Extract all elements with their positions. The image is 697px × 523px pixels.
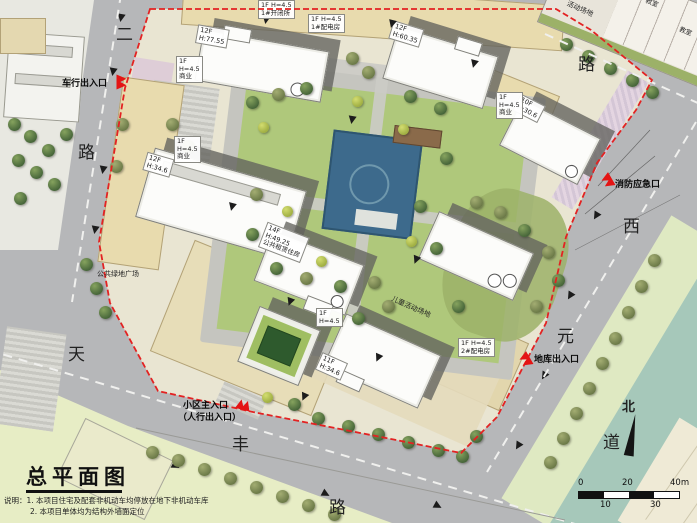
fire-emergency-label: 消防应急口 (615, 177, 660, 190)
commercial-label: 1FH=4.5商业 (176, 56, 203, 83)
public-green-label: 公共绿地广场 (97, 269, 139, 279)
tree-icon (352, 96, 363, 107)
scale-tick: 20 (622, 478, 633, 488)
tree-icon (80, 258, 93, 271)
scale-bar-segments (578, 491, 680, 499)
tree-icon (250, 188, 263, 201)
direction-arrow-icon (565, 291, 576, 302)
main-entrance-label-line2: （人行出入口） (178, 410, 241, 423)
tree-icon (302, 499, 315, 512)
tree-icon (609, 332, 622, 345)
utility-label-power-room-1: 1F H=4.51#配电房 (308, 14, 345, 33)
tree-icon (282, 206, 293, 217)
tree-icon (362, 66, 375, 79)
tree-icon (583, 382, 596, 395)
north-label: 北 (622, 396, 635, 415)
scale-tick: 0 (578, 478, 583, 488)
road-name-yuan: 元 (557, 322, 574, 347)
tree-icon (110, 160, 123, 173)
scale-tick: 30 (650, 500, 661, 510)
tree-icon (414, 200, 427, 213)
pool-fountain-icon (347, 162, 392, 207)
tree-icon (60, 128, 73, 141)
commercial-label: 1FH=4.5商业 (174, 136, 201, 163)
scale-tick: 40m (670, 478, 689, 488)
scale-tick: 10 (600, 500, 611, 510)
tree-icon (398, 124, 409, 135)
tree-icon (342, 420, 355, 433)
tree-icon (596, 357, 609, 370)
tree-icon (99, 306, 112, 319)
tree-icon (542, 246, 555, 259)
fire-emergency-marker-icon (599, 172, 615, 190)
direction-arrow-icon (591, 211, 602, 222)
tree-icon (372, 428, 385, 441)
tree-icon (570, 407, 583, 420)
tree-icon (30, 166, 43, 179)
tree-icon (402, 436, 415, 449)
tree-icon (432, 444, 445, 457)
tree-icon (14, 192, 27, 205)
road-name-feng: 丰 (232, 430, 249, 455)
tree-icon (440, 152, 453, 165)
tree-icon (604, 62, 617, 75)
road-name-xi: 西 (623, 212, 640, 237)
road-name-feng-lu: 路 (329, 493, 346, 518)
pool-deck (354, 209, 398, 230)
tree-icon (90, 282, 103, 295)
tree-icon (258, 122, 269, 133)
tree-icon (312, 412, 325, 425)
road-name-er: 二 (116, 20, 133, 45)
tree-icon (246, 228, 259, 241)
tree-icon (288, 398, 301, 411)
tree-icon (12, 154, 25, 167)
tree-icon (8, 118, 21, 131)
tree-icon (626, 74, 639, 87)
garage-entrance-label: 地库出入口 (534, 352, 579, 365)
tree-icon (246, 96, 259, 109)
direction-arrow-icon (90, 225, 99, 234)
tree-icon (646, 86, 659, 99)
tree-icon (334, 280, 347, 293)
tree-icon (48, 178, 61, 191)
road-name-lu-topright: 路 (578, 50, 595, 75)
utility-label-switch-station: 1F H=4.51#开闭所 (258, 0, 295, 19)
tree-icon (262, 392, 273, 403)
tree-icon (166, 118, 179, 131)
tree-icon (24, 130, 37, 143)
tree-icon (452, 300, 465, 313)
tree-icon (198, 463, 211, 476)
tree-icon (430, 242, 443, 255)
tree-icon (434, 102, 447, 115)
tree-icon (544, 456, 557, 469)
tree-icon (456, 450, 469, 463)
tree-icon (530, 300, 543, 313)
direction-arrow-icon (108, 67, 117, 76)
direction-arrow-icon (347, 115, 356, 124)
tree-icon (116, 118, 129, 131)
tree-icon (368, 276, 381, 289)
direction-arrow-icon (433, 501, 444, 512)
direction-arrow-icon (98, 165, 107, 174)
tree-icon (518, 224, 531, 237)
site-plan-canvas: 教室 教室 活动场地 12FH:77.55 (0, 0, 697, 523)
tree-icon (250, 481, 263, 494)
landscape-pool (322, 130, 424, 240)
tree-icon (146, 446, 159, 459)
title-underline (26, 490, 122, 493)
tree-icon (276, 490, 289, 503)
tree-icon (346, 52, 359, 65)
tree-icon (404, 90, 417, 103)
tree-icon (300, 82, 313, 95)
tree-icon (470, 430, 483, 443)
tree-icon (622, 306, 635, 319)
tree-icon (224, 472, 237, 485)
road-name-er-lu: 路 (78, 138, 95, 163)
tree-icon (172, 454, 185, 467)
tree-icon (300, 272, 313, 285)
northwest-annex (0, 18, 46, 54)
tree-icon (272, 88, 285, 101)
direction-arrow-icon (513, 441, 524, 452)
note-line-1: 说明：1. 本项目住宅及配套非机动车均停放在地下非机动车库 (4, 495, 209, 506)
tree-icon (557, 432, 570, 445)
utility-label-power-room-2: 1F H=4.52#配电房 (458, 338, 495, 357)
tree-icon (316, 256, 327, 267)
commercial-label: 1FH=4.5商业 (496, 92, 523, 119)
tree-icon (648, 254, 661, 267)
tree-icon (42, 144, 55, 157)
vehicle-entrance-label: 车行出入口 (62, 76, 107, 89)
tree-icon (470, 196, 483, 209)
note-line-2: 2. 本项目单体均为结构外墙面定位 (30, 506, 145, 517)
tree-icon (352, 312, 365, 325)
tree-icon (635, 280, 648, 293)
tree-icon (552, 274, 565, 287)
road-name-dao: 道 (603, 428, 620, 453)
commercial-label: 1FH=4.5 (316, 308, 343, 327)
tree-icon (560, 38, 573, 51)
tree-icon (406, 236, 417, 247)
direction-arrow-icon (539, 371, 550, 382)
scale-bar: 0 20 40m 10 30 (574, 478, 697, 512)
tree-icon (270, 262, 283, 275)
tree-icon (494, 206, 507, 219)
page-title: 总平面图 (26, 461, 130, 491)
road-name-tian: 天 (68, 340, 85, 365)
